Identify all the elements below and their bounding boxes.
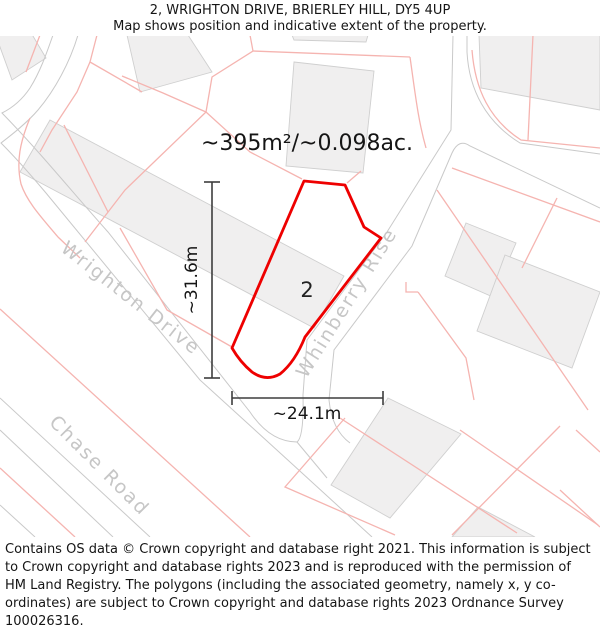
area-measurement-label: ~395m²/~0.098ac. [201, 131, 413, 156]
property-address-title: 2, WRIGHTON DRIVE, BRIERLEY HILL, DY5 4U… [0, 0, 600, 18]
vertical-dimension-label: ~31.6m [182, 246, 202, 315]
map-title-header: 2, WRIGHTON DRIVE, BRIERLEY HILL, DY5 4U… [0, 0, 600, 36]
copyright-footer: Contains OS data © Crown copyright and d… [0, 537, 600, 625]
plot-number-label: 2 [300, 278, 313, 302]
horizontal-dimension-label: ~24.1m [273, 404, 342, 424]
copyright-text: Contains OS data © Crown copyright and d… [5, 542, 591, 629]
map-description-subtitle: Map shows position and indicative extent… [0, 18, 600, 34]
map-canvas: Wrighton Drive Whinberry Rise Chase Road… [0, 0, 600, 625]
property-map: Wrighton Drive Whinberry Rise Chase Road… [0, 0, 600, 625]
